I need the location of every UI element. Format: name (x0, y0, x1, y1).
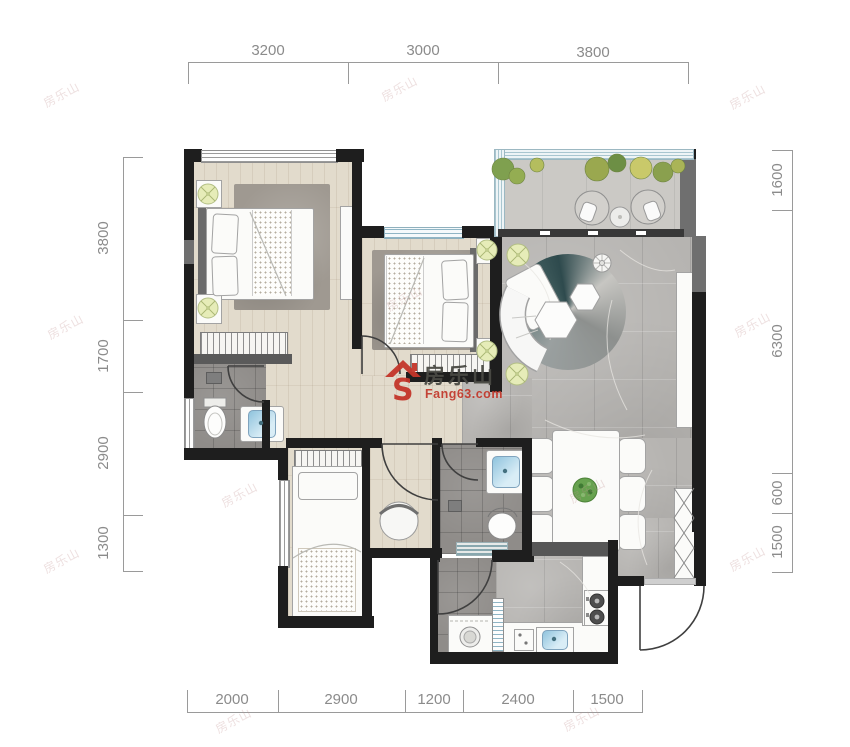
wall (262, 400, 270, 452)
dim-left-tick (123, 392, 143, 393)
dim-right-line (792, 150, 793, 573)
dim-top-tick (188, 62, 189, 84)
bathroom1-counter (194, 354, 292, 364)
bed1-pillow (211, 256, 238, 297)
dim-bottom-2000: 2000 (202, 691, 262, 709)
dim-bottom-1200: 1200 (404, 691, 464, 709)
logo-site-text: Fang63.com (425, 387, 503, 401)
dim-left-tick (123, 157, 143, 158)
wall (430, 652, 618, 664)
dining-chair (618, 438, 646, 474)
bed2-pillow (441, 259, 469, 300)
svg-text:S: S (392, 373, 414, 404)
dim-right-1600: 1600 (769, 150, 787, 210)
bathroom1-niche (206, 372, 222, 384)
bathroom2-sink (492, 456, 520, 488)
wall (616, 576, 644, 586)
tiled-watermark: 房乐山 (726, 80, 768, 113)
balcony-railing-left (494, 149, 505, 237)
house-logo-icon: S (384, 358, 422, 404)
wall (430, 554, 438, 664)
dim-left-tick (123, 320, 143, 321)
nightstand (196, 180, 222, 208)
dim-top-line (188, 62, 689, 63)
dim-right-1500: 1500 (769, 512, 787, 572)
site-logo: S 房乐山 Fang63.com (384, 358, 504, 408)
wall (608, 540, 618, 664)
wall-gray (184, 240, 194, 264)
tiled-watermark: 房乐山 (40, 544, 82, 577)
dim-left-line (123, 157, 124, 572)
dim-bottom-tick (573, 690, 574, 712)
tiled-watermark: 房乐山 (40, 78, 82, 111)
bed2-pillow (441, 302, 468, 343)
bed1-duvet (252, 210, 292, 296)
wall (522, 438, 532, 556)
bathroom1-window (184, 398, 195, 452)
dim-top-tick (688, 62, 689, 84)
wall (286, 438, 362, 448)
bathroom2-niche (448, 500, 462, 512)
wall (184, 149, 194, 398)
study-floor (370, 444, 434, 552)
dim-left-3800: 3800 (95, 208, 113, 268)
tiled-watermark: 房乐山 (218, 478, 260, 511)
wall-gray (680, 149, 696, 237)
wall (492, 550, 534, 562)
bedroom3-headboard (294, 450, 362, 467)
dim-top-3200: 3200 (238, 42, 298, 60)
dim-top-tick (498, 62, 499, 84)
dim-left-tick (123, 571, 143, 572)
dim-bottom-tick (278, 690, 279, 712)
balcony-railing-top (494, 149, 694, 160)
bed3-blanket (298, 548, 356, 612)
dim-right-tick (772, 210, 792, 211)
washing-machine (448, 615, 494, 657)
tiled-watermark: 房乐山 (44, 310, 86, 343)
wall (352, 149, 362, 349)
dim-left-tick (123, 515, 143, 516)
balcony-floor (498, 157, 682, 233)
dim-top-tick (348, 62, 349, 84)
wall (432, 438, 440, 560)
dim-bottom-2400: 2400 (488, 691, 548, 709)
dim-top-3000: 3000 (393, 42, 453, 60)
bedroom3-window (279, 480, 290, 568)
dim-left-1300: 1300 (95, 513, 113, 573)
dim-bottom-tick (642, 690, 643, 712)
dim-left-2900: 2900 (95, 423, 113, 483)
wall-kitchen-top (532, 542, 610, 556)
tiled-watermark: 房乐山 (726, 542, 768, 575)
logo-brand-text: 房乐山 (424, 360, 496, 390)
bed3-pillow (298, 472, 358, 500)
bed1-pillow (211, 213, 239, 254)
tiled-watermark: 房乐山 (378, 72, 420, 105)
sliding-door-gap (540, 231, 550, 235)
dining-chair (618, 476, 646, 512)
bedroom1-dresser (200, 332, 288, 356)
entry-threshold (644, 578, 696, 585)
dim-right-tick (772, 572, 792, 573)
wall (362, 438, 370, 550)
sliding-door-gap (588, 231, 598, 235)
dining-chair (618, 514, 646, 550)
bedroom2-window (384, 227, 464, 239)
wall (352, 226, 384, 238)
wall (692, 292, 706, 532)
kitchen-sink (542, 630, 568, 650)
bed1-headboard (198, 206, 206, 300)
kitchen-panel (514, 629, 534, 651)
wall (278, 616, 374, 628)
wall-gray (692, 236, 706, 292)
floorplan-image: 3200 3000 3800 2000 2900 1200 2400 1500 … (0, 0, 850, 747)
wall (362, 548, 372, 628)
bedroom1-window (201, 150, 338, 163)
tiled-watermark: 房乐山 (731, 308, 773, 341)
laundry-kitchen-window (492, 598, 504, 652)
wall (278, 448, 288, 480)
dim-bottom-tick (187, 690, 188, 712)
dim-bottom-2900: 2900 (311, 691, 371, 709)
dim-top-3800: 3800 (563, 44, 623, 62)
nightstand (196, 294, 222, 324)
sliding-door-gap (636, 231, 646, 235)
dim-left-1700: 1700 (95, 326, 113, 386)
